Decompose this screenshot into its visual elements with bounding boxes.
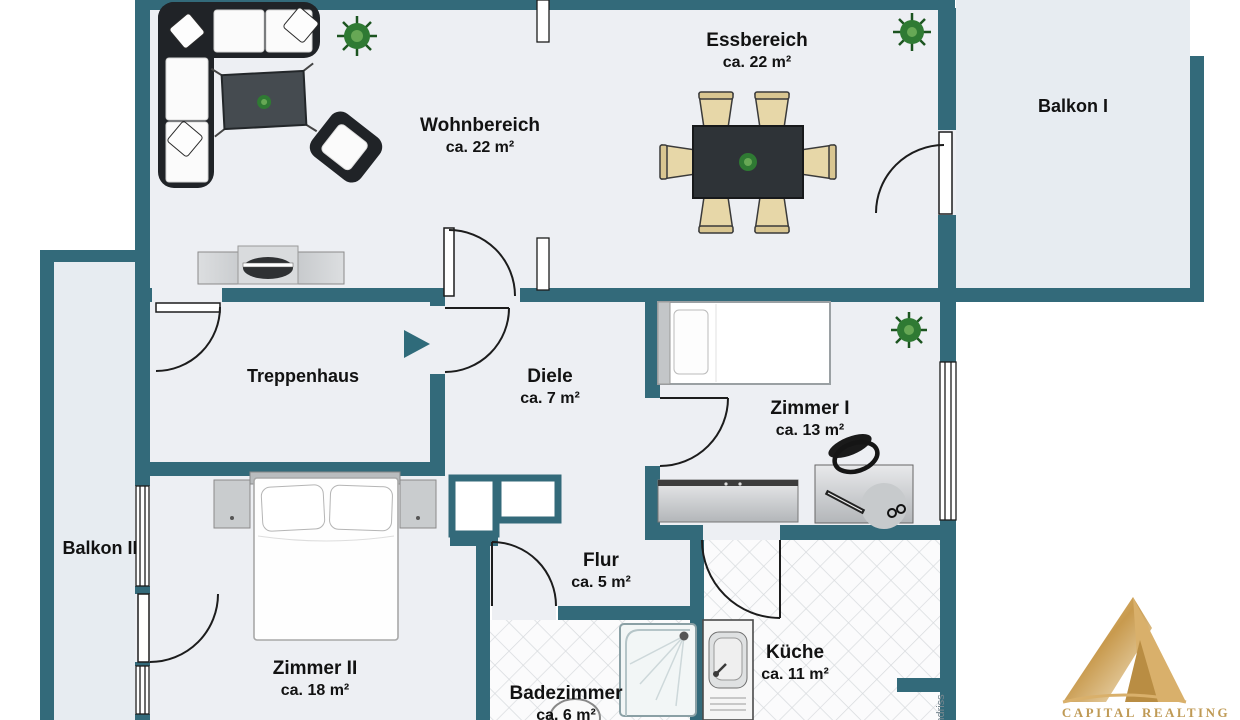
window-zimmer1 bbox=[940, 362, 956, 520]
shower bbox=[620, 624, 696, 716]
room-label-flur: Flur ca. 5 m² bbox=[571, 550, 631, 592]
nightstand bbox=[214, 480, 250, 528]
room-label-wohnbereich: Wohnbereich ca. 22 m² bbox=[420, 115, 540, 157]
sideboard bbox=[198, 246, 344, 284]
side-label-grundriss: Grundriss bbox=[935, 694, 947, 720]
single-bed bbox=[658, 302, 830, 384]
brand-logo: CAPITAL REALTING bbox=[1062, 597, 1230, 720]
room-label-kueche: Küche ca. 11 m² bbox=[761, 642, 829, 684]
room-label-balkon1: Balkon I bbox=[1038, 96, 1108, 118]
window-zimmer2 bbox=[136, 486, 149, 586]
desk bbox=[815, 465, 913, 529]
room-label-diele: Diele ca. 7 m² bbox=[520, 366, 580, 408]
plant-icon bbox=[891, 312, 927, 348]
dresser bbox=[658, 480, 798, 522]
room-label-badezimmer: Badezimmer ca. 6 m² bbox=[510, 683, 623, 720]
nightstand bbox=[400, 480, 436, 528]
kitchen-unit bbox=[703, 620, 753, 720]
window-zimmer2-lower bbox=[136, 666, 149, 714]
room-label-zimmer2: Zimmer II ca. 18 m² bbox=[273, 658, 357, 700]
coffee-table bbox=[211, 63, 316, 136]
room-label-essbereich: Essbereich ca. 22 m² bbox=[706, 30, 807, 72]
room-label-balkon2: Balkon II bbox=[62, 538, 137, 560]
room-label-zimmer1: Zimmer I ca. 13 m² bbox=[770, 398, 849, 440]
balkon1-floor bbox=[956, 0, 1190, 290]
room-label-treppenhaus: Treppenhaus bbox=[247, 366, 359, 388]
brand-name: CAPITAL REALTING bbox=[1062, 705, 1230, 720]
balkon2-floor bbox=[54, 262, 135, 720]
floorplan-canvas: Grundriss CAPITAL REALTING Wohnbereich c… bbox=[0, 0, 1240, 720]
plant-icon bbox=[337, 16, 377, 56]
